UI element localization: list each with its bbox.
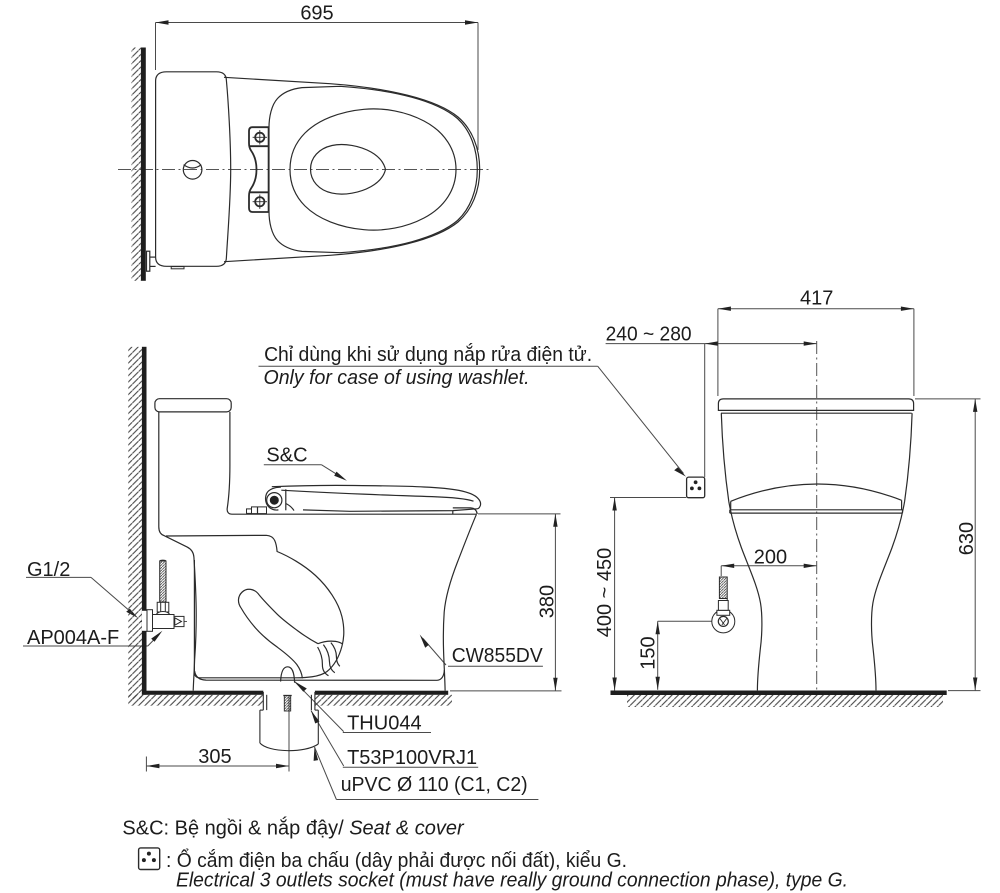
svg-text:240 ~ 280: 240 ~ 280: [606, 324, 692, 346]
svg-text:CW855DV: CW855DV: [452, 645, 544, 667]
svg-text:THU044: THU044: [347, 713, 421, 735]
svg-text:G1/2: G1/2: [27, 559, 70, 581]
svg-text:S&C: Bệ ngồi & nắp đậy/ Seat &: S&C: Bệ ngồi & nắp đậy/ Seat & cover: [122, 817, 465, 840]
svg-text:695: 695: [300, 3, 333, 25]
svg-text:630: 630: [956, 522, 978, 555]
svg-text:305: 305: [198, 746, 231, 768]
svg-text:380: 380: [537, 585, 559, 618]
svg-text:Chỉ dùng khi sử dụng nắp rửa đ: Chỉ dùng khi sử dụng nắp rửa điện tử.: [264, 343, 592, 366]
svg-text:400 ~ 450: 400 ~ 450: [594, 548, 616, 638]
svg-text:Only for case of using washlet: Only for case of using washlet.: [264, 367, 530, 389]
svg-text:T53P100VRJ1: T53P100VRJ1: [347, 747, 477, 769]
svg-text:AP004A-F: AP004A-F: [27, 627, 119, 649]
svg-text:uPVC Ø 110 (C1, C2): uPVC Ø 110 (C1, C2): [341, 774, 528, 796]
svg-text:Electrical 3 outlets socket (m: Electrical 3 outlets socket (must have r…: [176, 870, 848, 892]
svg-text:200: 200: [754, 547, 787, 569]
svg-text:: Ổ cắm điện ba chấu (dây phải: : Ổ cắm điện ba chấu (dây phải được nối …: [166, 848, 627, 872]
svg-text:417: 417: [800, 288, 833, 310]
svg-text:150: 150: [638, 636, 660, 669]
svg-text:S&C: S&C: [266, 445, 307, 467]
